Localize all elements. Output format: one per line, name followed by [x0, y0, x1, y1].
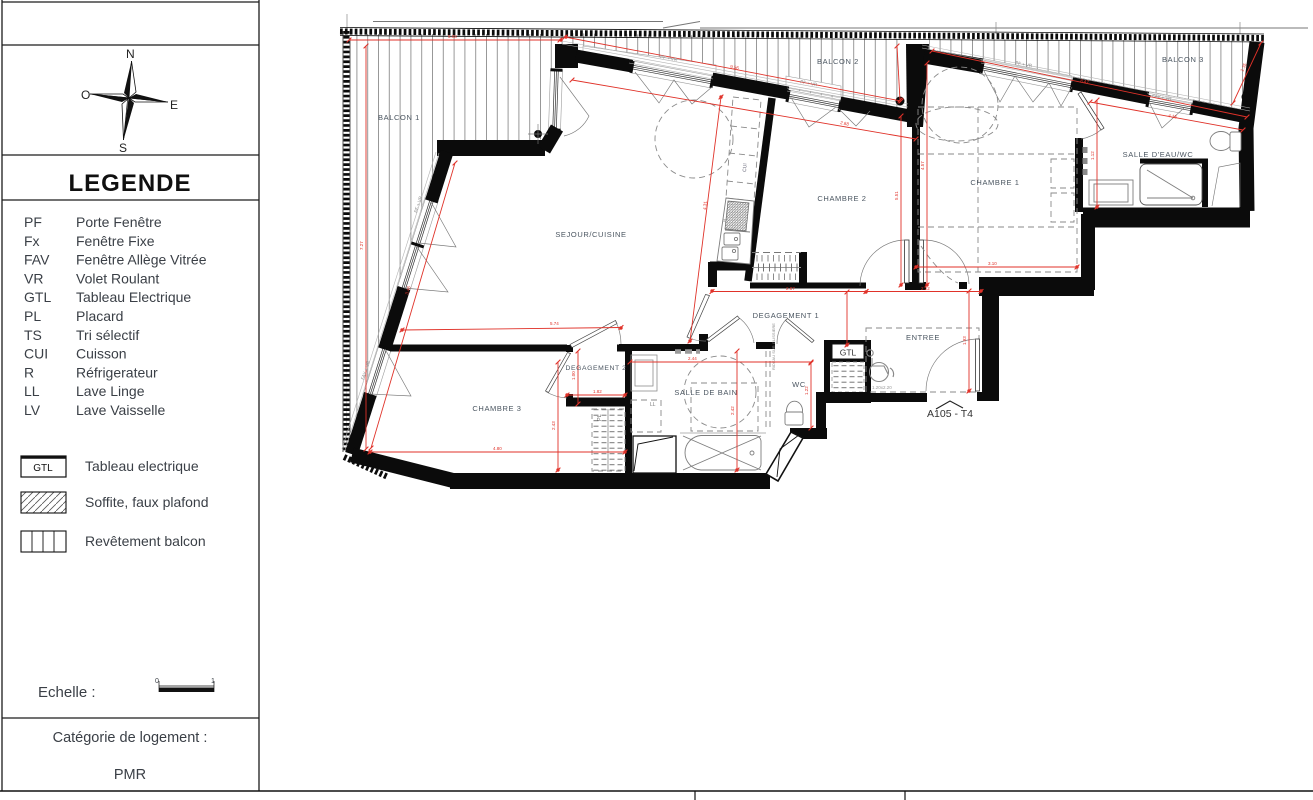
svg-text:2.44: 2.44: [688, 356, 697, 361]
svg-text:Réfrigerateur: Réfrigerateur: [76, 364, 158, 380]
svg-text:Tri sélectif: Tri sélectif: [76, 327, 139, 343]
svg-text:4.57: 4.57: [920, 161, 925, 170]
svg-text:1: 1: [211, 678, 215, 685]
svg-text:BALCON 1: BALCON 1: [378, 113, 420, 122]
svg-text:GTL: GTL: [840, 348, 857, 358]
svg-text:1.93: 1.93: [962, 336, 967, 345]
svg-text:SEJOUR/CUISINE: SEJOUR/CUISINE: [555, 230, 626, 239]
svg-text:CHAMBRE 3: CHAMBRE 3: [472, 404, 521, 413]
svg-text:R: R: [24, 364, 34, 380]
svg-text:5.74: 5.74: [550, 321, 559, 326]
svg-text:1.00: 1.00: [571, 371, 576, 380]
svg-text:ENTREE: ENTREE: [906, 333, 940, 342]
svg-text:Tableau Electrique: Tableau Electrique: [76, 289, 191, 305]
svg-text:N: N: [126, 47, 135, 61]
svg-text:5.51: 5.51: [894, 191, 899, 200]
svg-text:RIDEAU SUR GLISSIERE: RIDEAU SUR GLISSIERE: [771, 323, 776, 370]
svg-text:BALCON 3: BALCON 3: [1162, 55, 1204, 64]
svg-text:PMR: PMR: [114, 767, 146, 783]
svg-text:Fenêtre Allège Vitrée: Fenêtre Allège Vitrée: [76, 252, 207, 268]
svg-text:Tableau electrique: Tableau electrique: [85, 458, 199, 474]
svg-text:SALLE DE BAIN: SALLE DE BAIN: [674, 388, 737, 397]
svg-text:2.42: 2.42: [730, 406, 735, 415]
svg-text:LL: LL: [650, 402, 656, 408]
svg-text:2.87: 2.87: [786, 286, 795, 291]
svg-text:BALCON 2: BALCON 2: [817, 57, 859, 66]
svg-text:TS: TS: [24, 327, 42, 343]
svg-text:CUI: CUI: [24, 346, 48, 362]
svg-text:Volet Roulant: Volet Roulant: [76, 270, 159, 286]
svg-text:PL: PL: [24, 308, 41, 324]
svg-text:Lave Vaisselle: Lave Vaisselle: [76, 402, 165, 418]
svg-text:3.10: 3.10: [988, 261, 997, 266]
svg-text:A105 - T4: A105 - T4: [927, 408, 973, 420]
svg-text:LL: LL: [24, 383, 40, 399]
svg-text:7.27: 7.27: [359, 241, 364, 250]
svg-text:WC: WC: [792, 380, 806, 389]
svg-text:Cuisson: Cuisson: [76, 346, 127, 362]
svg-text:Soffite, faux plafond: Soffite, faux plafond: [85, 494, 209, 510]
svg-text:CHAMBRE 2: CHAMBRE 2: [817, 194, 866, 203]
svg-text:Placard: Placard: [76, 308, 123, 324]
svg-text:4.80: 4.80: [493, 446, 502, 451]
svg-text:Echelle :: Echelle :: [38, 684, 96, 701]
svg-text:GTL: GTL: [24, 289, 51, 305]
svg-text:PF: PF: [24, 214, 42, 230]
svg-text:Fenêtre Fixe: Fenêtre Fixe: [76, 233, 155, 249]
svg-text:2.22: 2.22: [921, 286, 930, 291]
svg-text:VR: VR: [24, 270, 43, 286]
svg-text:Porte Fenêtre: Porte Fenêtre: [76, 214, 162, 230]
svg-text:CHAMBRE 1: CHAMBRE 1: [970, 178, 1019, 187]
svg-text:LEGENDE: LEGENDE: [68, 170, 191, 197]
svg-text:1.82: 1.82: [593, 389, 602, 394]
svg-text:FAV: FAV: [24, 252, 50, 268]
svg-text:DEGAGEMENT 2: DEGAGEMENT 2: [565, 365, 626, 372]
svg-text:0: 0: [155, 678, 159, 685]
svg-text:GTL: GTL: [33, 463, 53, 474]
svg-text:Catégorie de logement :: Catégorie de logement :: [53, 730, 208, 746]
svg-text:PL: PL: [597, 414, 603, 421]
svg-text:2.43: 2.43: [551, 421, 556, 430]
svg-text:O: O: [81, 88, 90, 102]
svg-text:S: S: [119, 141, 127, 155]
svg-text:Fx: Fx: [24, 233, 40, 249]
svg-text:4.31: 4.31: [702, 200, 708, 210]
svg-text:E: E: [170, 98, 178, 112]
svg-text:Revêtement balcon: Revêtement balcon: [85, 533, 206, 549]
svg-text:Lave Linge: Lave Linge: [76, 383, 145, 399]
svg-text:LV: LV: [24, 402, 41, 418]
svg-text:DEGAGEMENT 1: DEGAGEMENT 1: [753, 311, 820, 320]
svg-text:CUI: CUI: [742, 163, 749, 172]
svg-text:5.08: 5.08: [448, 34, 457, 39]
svg-text:SALLE D'EAU/WC: SALLE D'EAU/WC: [1123, 150, 1194, 159]
svg-text:1.20x2.20: 1.20x2.20: [872, 385, 892, 390]
svg-text:1.12: 1.12: [1090, 151, 1095, 160]
